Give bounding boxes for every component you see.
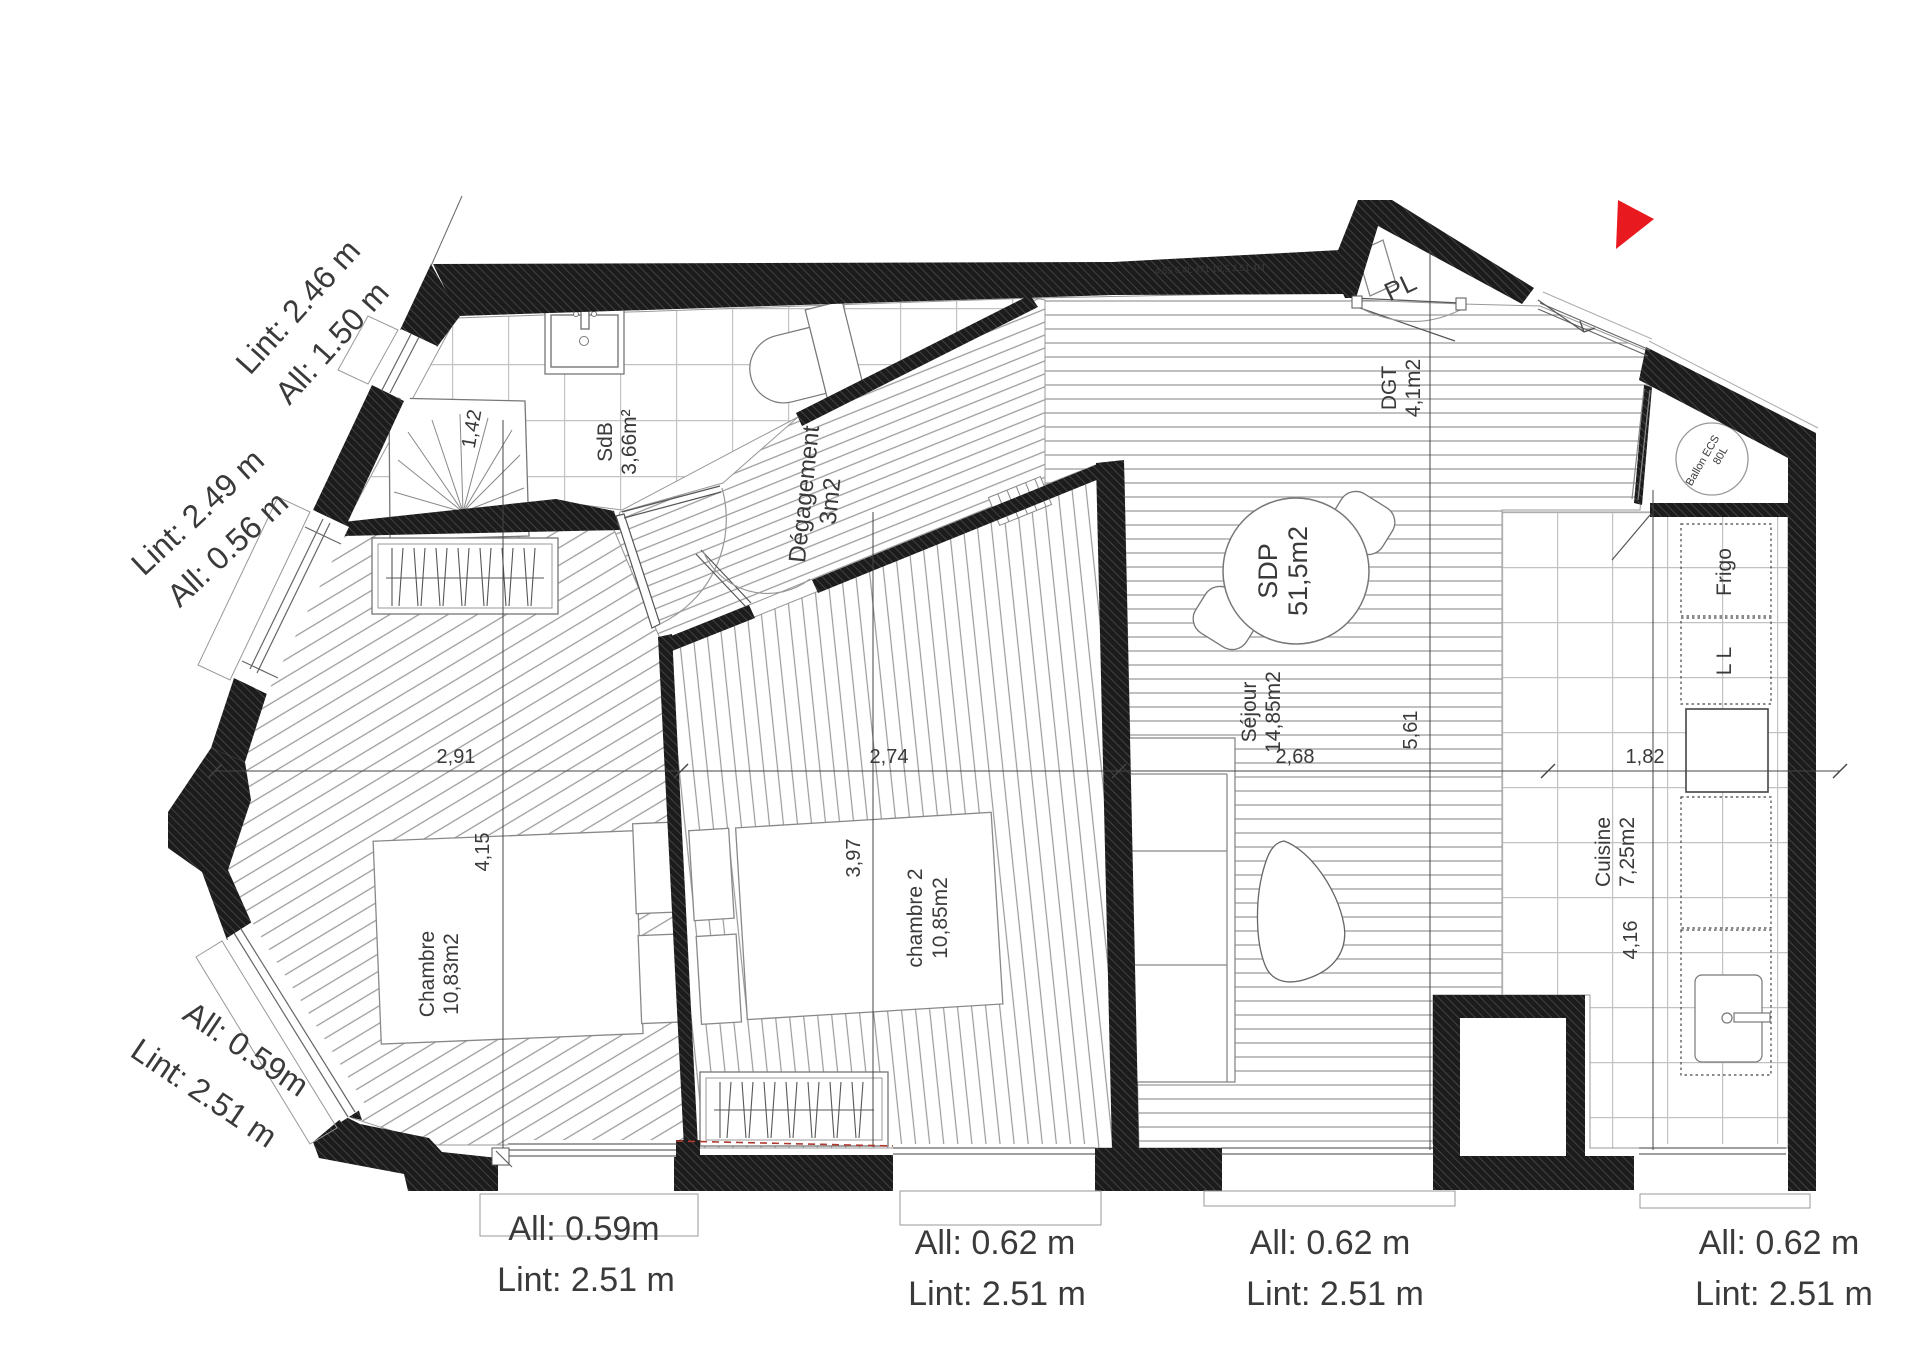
svg-text:51,5m2: 51,5m2 bbox=[1283, 526, 1313, 616]
svg-text:3,66m²: 3,66m² bbox=[618, 409, 641, 474]
svg-text:Chambre: Chambre bbox=[416, 931, 439, 1017]
svg-text:Lint: 2.51 m: Lint: 2.51 m bbox=[1695, 1275, 1873, 1313]
svg-text:4,16: 4,16 bbox=[1620, 921, 1642, 960]
svg-text:SDP: SDP bbox=[1253, 543, 1283, 599]
svg-text:Lint: 2.51 m: Lint: 2.51 m bbox=[1246, 1275, 1424, 1313]
svg-text:All: 0.62 m: All: 0.62 m bbox=[915, 1224, 1076, 1262]
svg-text:DGT: DGT bbox=[1378, 366, 1401, 411]
svg-text:L L: L L bbox=[1713, 647, 1736, 675]
svg-text:Lint: 2.51 m: Lint: 2.51 m bbox=[908, 1275, 1086, 1313]
svg-text:7,25m2: 7,25m2 bbox=[1616, 817, 1639, 887]
svg-text:14,85m2: 14,85m2 bbox=[1262, 671, 1285, 753]
svg-text:All: 0.62 m: All: 0.62 m bbox=[1699, 1224, 1860, 1262]
svg-text:2,91: 2,91 bbox=[437, 746, 476, 768]
svg-text:All: 0.59m: All: 0.59m bbox=[508, 1210, 659, 1248]
svg-text:4,1m2: 4,1m2 bbox=[1402, 359, 1425, 417]
svg-text:3m2: 3m2 bbox=[815, 477, 847, 526]
svg-text:2,74: 2,74 bbox=[870, 746, 909, 768]
svg-text:10,85m2: 10,85m2 bbox=[929, 877, 952, 959]
svg-text:All: 0.62 m: All: 0.62 m bbox=[1250, 1224, 1411, 1262]
svg-text:3,97: 3,97 bbox=[843, 839, 865, 878]
svg-text:1,82: 1,82 bbox=[1626, 746, 1665, 768]
svg-text:2,68: 2,68 bbox=[1276, 746, 1315, 768]
svg-text:5,61: 5,61 bbox=[1400, 711, 1422, 750]
svg-text:Lint: 2.51 m: Lint: 2.51 m bbox=[497, 1261, 675, 1299]
svg-text:chambre 2: chambre 2 bbox=[904, 868, 927, 967]
svg-text:4,15: 4,15 bbox=[472, 833, 494, 872]
svg-text:Cuisine: Cuisine bbox=[1592, 817, 1615, 887]
svg-text:Séjour: Séjour bbox=[1238, 682, 1261, 743]
svg-text:Frigo: Frigo bbox=[1713, 548, 1736, 596]
svg-text:SdB: SdB bbox=[594, 422, 617, 462]
svg-text:10,83m2: 10,83m2 bbox=[440, 933, 463, 1015]
